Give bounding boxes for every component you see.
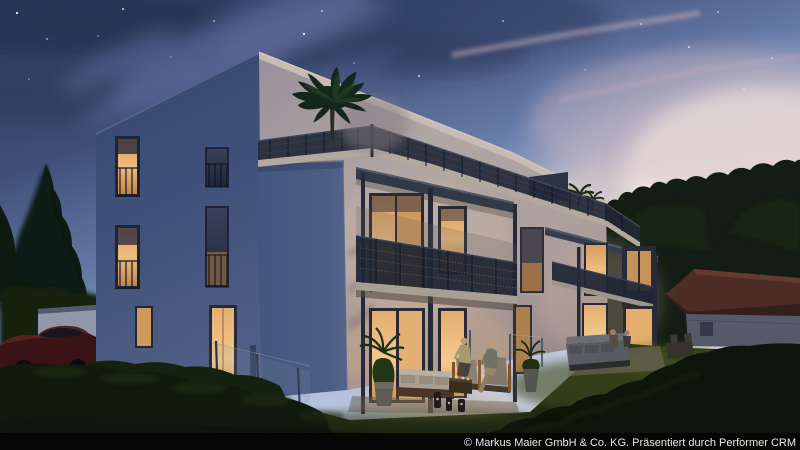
svg-text:© Markus Maier GmbH & Co. KG.: © Markus Maier GmbH & Co. KG. Präsentier…: [464, 437, 796, 449]
